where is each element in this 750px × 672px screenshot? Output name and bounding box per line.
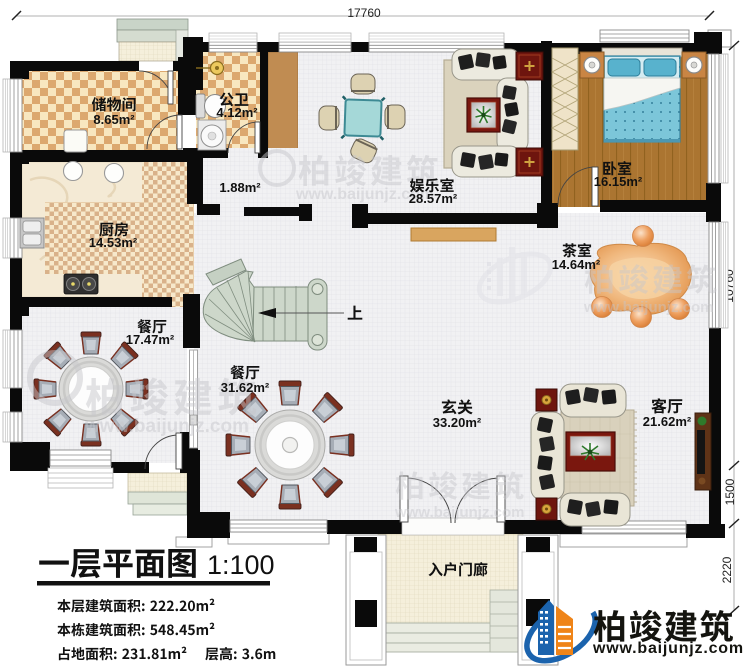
- svg-text:21.62m²: 21.62m²: [643, 414, 692, 429]
- svg-text:17760: 17760: [347, 6, 381, 20]
- svg-text:17.47m²: 17.47m²: [126, 332, 175, 347]
- svg-text:www.baijunjz.com: www.baijunjz.com: [592, 640, 744, 657]
- svg-text:16.15m²: 16.15m²: [594, 174, 643, 189]
- svg-text:1.88m²: 1.88m²: [219, 180, 261, 195]
- svg-text:31.62m²: 31.62m²: [221, 380, 270, 395]
- svg-text:4.12m²: 4.12m²: [216, 105, 258, 120]
- svg-text:33.20m²: 33.20m²: [433, 415, 482, 430]
- svg-text:www.baijunjz.com: www.baijunjz.com: [583, 299, 713, 316]
- svg-text:1:100: 1:100: [207, 550, 275, 580]
- svg-text:14.53m²: 14.53m²: [89, 235, 138, 250]
- svg-text:14.64m²: 14.64m²: [552, 257, 601, 272]
- svg-text:28.57m²: 28.57m²: [409, 191, 458, 206]
- svg-text:2220: 2220: [720, 556, 734, 583]
- svg-text:8.65m²: 8.65m²: [93, 112, 135, 127]
- svg-text:www.baijunjz.com: www.baijunjz.com: [394, 504, 524, 521]
- svg-text:www.baijunjz.com: www.baijunjz.com: [84, 416, 249, 437]
- svg-text:1500: 1500: [723, 478, 737, 505]
